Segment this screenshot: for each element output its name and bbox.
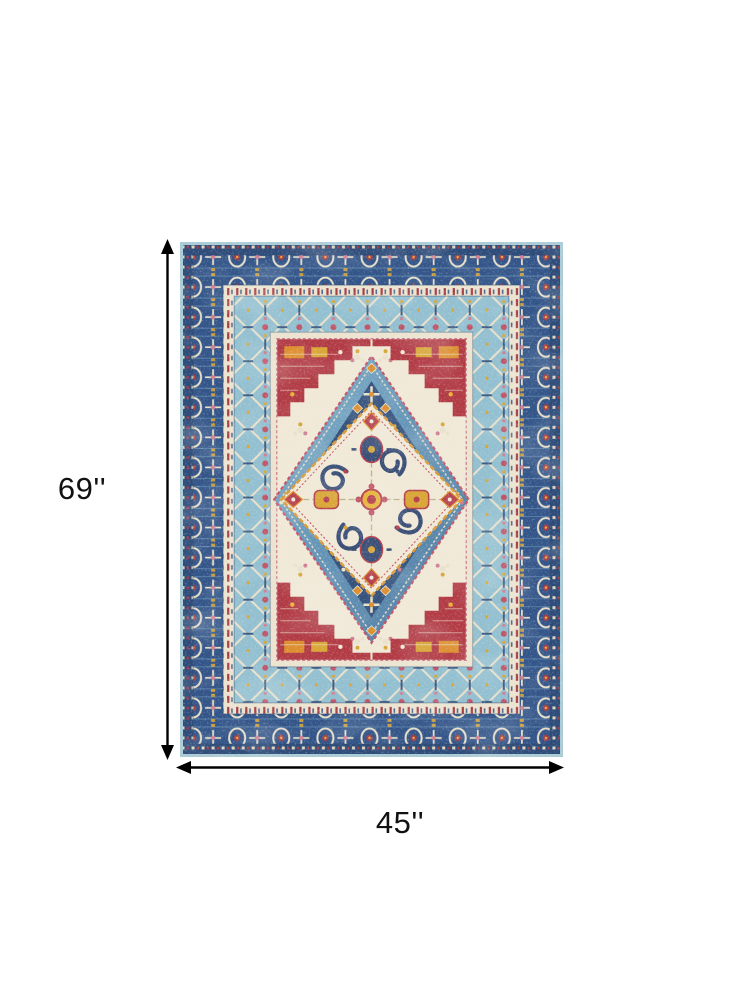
horizontal-dimension-arrow-icon <box>175 756 565 779</box>
vertical-dimension-arrow-icon <box>156 238 179 761</box>
width-dimension-label: 45'' <box>376 805 424 841</box>
rug-image <box>180 242 563 757</box>
rug-distress-overlay <box>183 245 560 754</box>
product-dimension-diagram: 69'' 45'' <box>0 0 739 1000</box>
height-dimension-label: 69'' <box>58 471 106 507</box>
